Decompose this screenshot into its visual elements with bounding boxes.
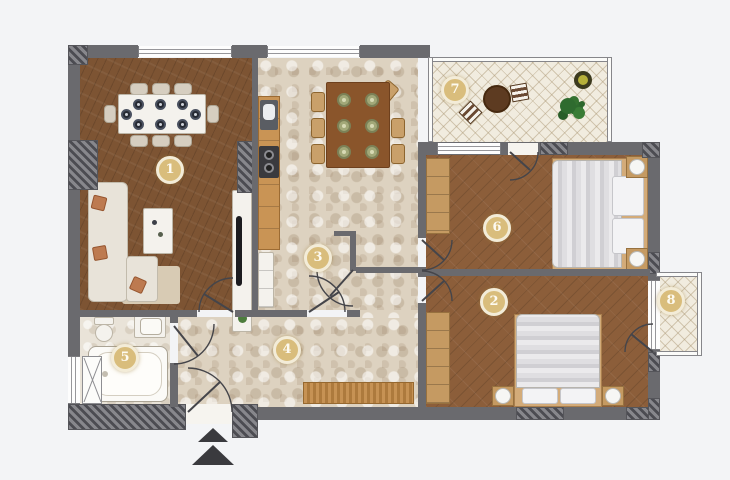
kitchen-chair [391,118,405,138]
bedroom2-pillow [560,388,596,404]
dining-chair [152,135,170,147]
plate-icon [155,119,166,130]
wall-segment [235,310,307,317]
kitchen-cabinet [258,252,274,308]
terrace-door-opening [508,143,538,155]
terrace-chair [510,83,530,103]
wall-segment [68,404,186,430]
wall-segment [68,45,88,65]
terrace-railing [607,57,612,142]
window [138,46,232,57]
bedroom6-lamp-icon [629,251,645,267]
wall-segment [232,404,258,438]
wall-segment [170,317,178,323]
terrace-table [483,85,511,113]
terrace-plant-icon [560,98,576,114]
entrance-arrow-icon [192,445,234,465]
bathroom-window-sash [82,356,102,404]
wall-segment [418,303,426,407]
wall-segment [642,142,660,158]
kitchen-plate-icon [365,93,379,107]
coffee-table [143,208,173,254]
plate-icon [177,99,188,110]
kitchen-chair [311,92,325,112]
terrace-potted-plant-leaves-icon [578,75,588,85]
kitchen-plate-icon [337,93,351,107]
kitchen-chair [391,144,405,164]
bathtub-drain-icon [102,371,108,377]
balcony8-railing [697,272,702,356]
wall-segment [426,269,650,276]
kitchen-plate-icon [337,145,351,159]
floor-plan-canvas: 1 2 3 4 5 6 7 8 [0,0,730,480]
wall-segment [350,231,356,271]
room-badge-5: 5 [111,344,139,372]
dining-chair [174,135,192,147]
kitchen-chair [311,144,325,164]
kitchen-plate-icon [365,145,379,159]
balcony8-railing [656,272,702,277]
kitchen-plate-icon [365,119,379,133]
bedroom2-pillow [522,388,558,404]
plate-icon [177,119,188,130]
room-badge-1: 1 [156,156,184,184]
entrance-arrow-icon [198,428,228,442]
wall-segment [232,407,660,420]
terrace-railing [428,57,433,142]
stove-burner-icon [264,150,274,160]
hall-doormat [303,382,414,404]
stove-burner-icon [264,163,274,173]
wall-segment [418,155,426,238]
wall-segment [540,142,568,155]
window [68,356,80,404]
hallway-floor-gap [360,310,418,318]
wall-segment [360,45,430,58]
balcony8-railing [656,351,702,356]
terrace-railing [428,57,612,62]
kitchen-plate-icon [337,119,351,133]
entrance-threshold [186,404,232,424]
bedroom6-lamp-icon [629,159,645,175]
plate-icon [121,109,132,120]
room-badge-6: 6 [483,214,511,242]
wall-segment [232,45,267,58]
room-badge-8: 8 [657,287,685,315]
coffee-table-decor [152,220,157,225]
bedroom2-lamp-icon [605,388,621,404]
toilet-bowl [95,324,113,342]
room-badge-4: 4 [273,336,301,364]
dining-chair [104,105,116,123]
dining-chair [207,105,219,123]
plate-icon [133,119,144,130]
bedroom2-wardrobe [426,312,450,404]
plate-icon [155,99,166,110]
bedroom2-lamp-icon [495,388,511,404]
room-badge-7: 7 [441,76,469,104]
room-badge-2: 2 [480,288,508,316]
bedroom2-duvet [516,314,600,388]
kitchen-chair [311,118,325,138]
wall-segment [418,267,426,277]
sofa-pillow [92,245,108,261]
wall-segment [68,140,98,190]
window [267,46,360,57]
balcony-door-opening [648,280,660,350]
window [437,143,501,154]
bedroom6-pillow [612,176,644,216]
wall-segment [356,267,418,273]
tv-icon [236,216,242,286]
kitchen-sink-basin [263,104,275,120]
coffee-table-decor [158,232,163,237]
room-badge-3: 3 [304,244,332,272]
wall-segment [80,310,197,317]
wall-segment [648,398,660,420]
plate-icon [190,109,201,120]
wall-segment [347,310,360,317]
kitchen-table [326,82,390,168]
wall-segment [516,407,564,420]
plate-icon [133,99,144,110]
wall-segment [252,58,258,310]
wall-segment [170,363,178,407]
dining-chair [130,135,148,147]
bathroom-sink-basin [140,318,162,335]
bedroom6-wardrobe [426,158,450,234]
